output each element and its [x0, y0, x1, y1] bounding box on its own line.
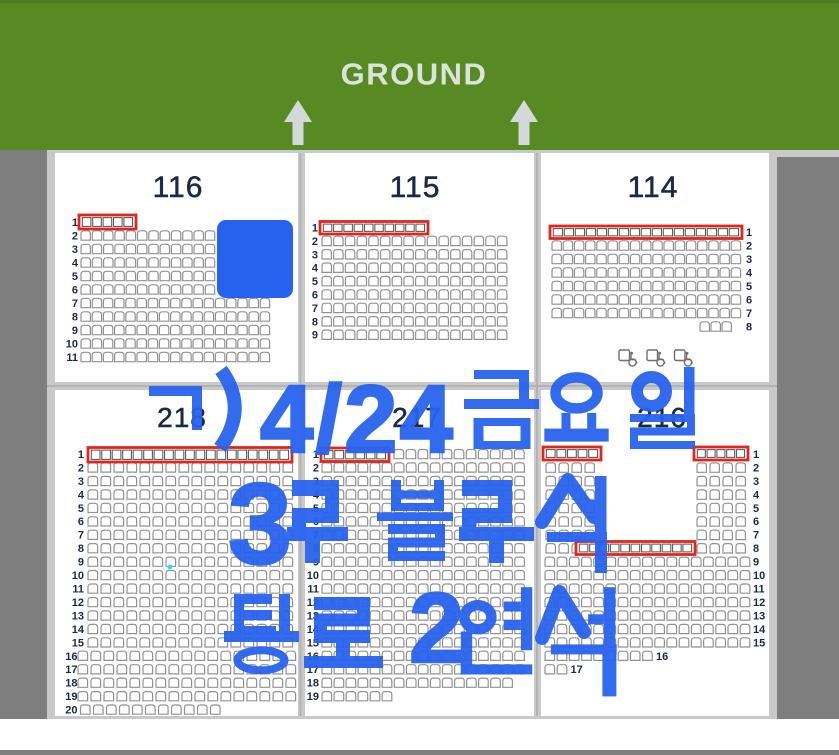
svg-text:3: 3: [753, 476, 759, 488]
svg-text:10: 10: [66, 339, 78, 351]
svg-text:5: 5: [312, 276, 318, 288]
svg-text:2: 2: [312, 236, 318, 248]
svg-text:7: 7: [78, 530, 84, 542]
svg-text:3: 3: [78, 476, 84, 488]
svg-text:7: 7: [72, 298, 78, 310]
svg-text:4/24: 4/24: [260, 366, 455, 473]
svg-text:9: 9: [312, 330, 318, 342]
svg-text:6: 6: [78, 516, 84, 528]
svg-text:18: 18: [307, 678, 319, 690]
svg-text:1: 1: [78, 449, 84, 461]
svg-text:8: 8: [78, 543, 84, 555]
svg-text:6: 6: [746, 295, 752, 307]
svg-text:8: 8: [753, 543, 759, 555]
svg-text:7: 7: [746, 308, 752, 320]
svg-text:15: 15: [72, 637, 84, 649]
svg-text:5: 5: [753, 503, 759, 515]
svg-text:6: 6: [312, 290, 318, 302]
svg-text:19: 19: [307, 691, 319, 703]
svg-text:15: 15: [753, 637, 765, 649]
svg-text:5: 5: [746, 281, 752, 293]
svg-text:2: 2: [753, 462, 759, 474]
svg-text:10: 10: [753, 570, 765, 582]
svg-text:1: 1: [753, 449, 759, 461]
svg-text:14: 14: [753, 624, 766, 636]
svg-text:9: 9: [753, 557, 759, 569]
svg-text:12: 12: [72, 597, 84, 609]
svg-text:16: 16: [656, 651, 668, 663]
svg-text:1: 1: [746, 227, 752, 239]
svg-text:10: 10: [307, 570, 319, 582]
svg-text:115: 115: [390, 171, 441, 204]
svg-text:GROUND: GROUND: [341, 57, 488, 92]
svg-text:9: 9: [72, 325, 78, 337]
svg-text:114: 114: [628, 171, 679, 204]
svg-text:116: 116: [153, 171, 204, 204]
svg-text:6: 6: [753, 516, 759, 528]
svg-text:5: 5: [78, 503, 84, 515]
svg-text:1: 1: [72, 217, 78, 229]
svg-text:4: 4: [746, 268, 753, 280]
svg-text:8: 8: [312, 316, 318, 328]
svg-text:17: 17: [571, 664, 583, 676]
svg-text:11: 11: [72, 584, 84, 596]
svg-text:3: 3: [746, 254, 752, 266]
svg-text:13: 13: [753, 610, 765, 622]
svg-text:2: 2: [409, 572, 464, 683]
svg-text:8: 8: [72, 312, 78, 324]
svg-text:4: 4: [72, 258, 79, 270]
svg-text:5: 5: [72, 271, 78, 283]
svg-text:14: 14: [72, 624, 85, 636]
svg-text:4: 4: [312, 263, 319, 275]
svg-text:17: 17: [65, 664, 77, 676]
svg-text:19: 19: [65, 691, 77, 703]
svg-text:7: 7: [753, 530, 759, 542]
svg-text:2: 2: [746, 241, 752, 253]
svg-text:2: 2: [72, 231, 78, 243]
svg-text:12: 12: [753, 597, 765, 609]
svg-text:7: 7: [312, 303, 318, 315]
svg-text:8: 8: [746, 322, 752, 334]
svg-text:2: 2: [78, 462, 84, 474]
svg-text:18: 18: [65, 678, 77, 690]
svg-text:16: 16: [65, 651, 77, 663]
svg-text:4: 4: [78, 489, 85, 501]
svg-text:6: 6: [72, 285, 78, 297]
svg-text:20: 20: [65, 705, 77, 717]
svg-text:3: 3: [228, 460, 292, 588]
svg-text:3: 3: [72, 244, 78, 256]
svg-text:13: 13: [72, 610, 84, 622]
svg-text:3: 3: [312, 249, 318, 261]
svg-text:11: 11: [753, 584, 765, 596]
svg-text:11: 11: [307, 584, 319, 596]
svg-text:10: 10: [72, 570, 84, 582]
svg-text:4: 4: [753, 489, 760, 501]
svg-text:9: 9: [78, 557, 84, 569]
svg-text:11: 11: [66, 352, 78, 364]
svg-text:1: 1: [312, 223, 318, 235]
